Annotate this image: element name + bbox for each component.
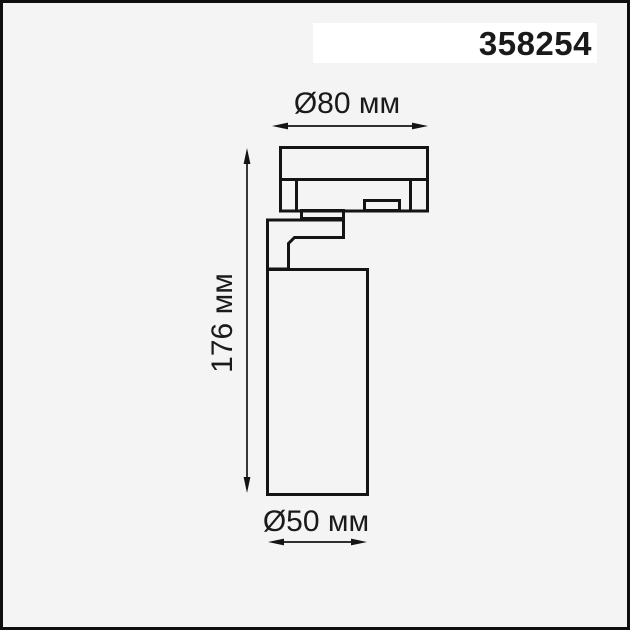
height-dimension	[244, 148, 251, 493]
product-code-badge: 358254	[313, 23, 597, 63]
product-code: 358254	[479, 27, 592, 60]
height-label: 176 мм	[208, 273, 238, 373]
terminal-block	[365, 201, 400, 211]
width-dimension-bottom	[268, 539, 367, 546]
lamp-cylinder	[268, 270, 368, 495]
width-dimension-top	[272, 123, 428, 130]
mount-bracket	[268, 220, 344, 269]
top-diameter-label: Ø80 мм	[294, 89, 400, 119]
bottom-diameter-label: Ø50 мм	[263, 507, 369, 537]
mount-neck	[302, 211, 344, 219]
drawing-canvas: 358254 Ø80 мм 176 мм Ø50 мм	[0, 0, 630, 630]
